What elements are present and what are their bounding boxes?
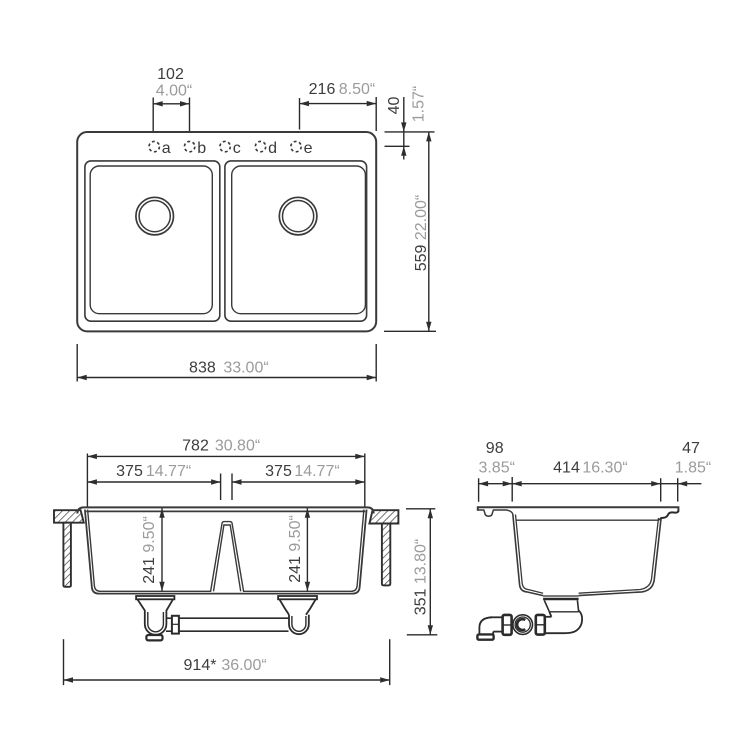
svg-text:c: c xyxy=(233,140,241,157)
svg-text:b: b xyxy=(197,140,206,157)
svg-text:e: e xyxy=(304,140,313,157)
svg-text:40: 40 xyxy=(386,97,403,115)
svg-text:241 9.50“: 241 9.50“ xyxy=(141,516,158,584)
svg-text:3.85“: 3.85“ xyxy=(478,460,514,477)
svg-text:102: 102 xyxy=(157,66,184,83)
svg-text:8.50“: 8.50“ xyxy=(339,81,375,98)
svg-text:30.80“: 30.80“ xyxy=(215,438,260,455)
svg-text:414: 414 xyxy=(553,460,580,477)
svg-text:216: 216 xyxy=(309,81,336,98)
svg-text:d: d xyxy=(268,140,277,157)
svg-text:a: a xyxy=(162,140,171,157)
svg-text:16.30“: 16.30“ xyxy=(582,460,627,477)
svg-text:98: 98 xyxy=(486,440,504,457)
svg-text:1.57“: 1.57“ xyxy=(411,86,428,122)
svg-text:559 22.00“: 559 22.00“ xyxy=(413,195,430,272)
svg-text:838: 838 xyxy=(189,360,216,377)
svg-text:36.00“: 36.00“ xyxy=(221,657,266,674)
svg-text:241 9.50“: 241 9.50“ xyxy=(287,515,304,583)
svg-text:351 13.80“: 351 13.80“ xyxy=(413,539,430,616)
svg-text:914*: 914* xyxy=(184,657,217,674)
svg-text:14.77“: 14.77“ xyxy=(294,463,339,480)
svg-text:33.00“: 33.00“ xyxy=(223,360,268,377)
svg-text:1.85“: 1.85“ xyxy=(675,460,711,477)
svg-text:47: 47 xyxy=(682,440,700,457)
svg-text:782: 782 xyxy=(182,438,209,455)
svg-text:375: 375 xyxy=(265,463,292,480)
svg-text:14.77“: 14.77“ xyxy=(146,463,191,480)
svg-text:375: 375 xyxy=(116,463,143,480)
svg-text:4.00“: 4.00“ xyxy=(156,83,192,100)
